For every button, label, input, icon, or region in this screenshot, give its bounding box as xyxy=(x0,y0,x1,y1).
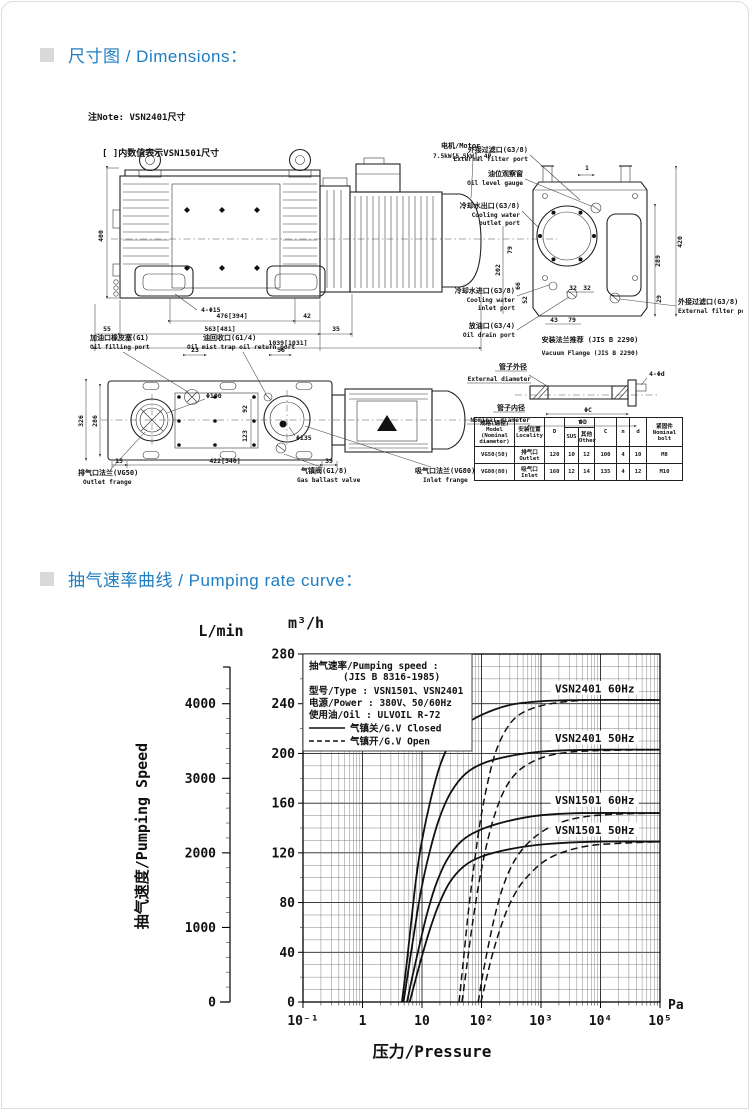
cooling-fins-left xyxy=(123,184,169,264)
cooling-out-zh: 冷却水出口(G3/8) xyxy=(460,201,520,210)
x-axis-ticks xyxy=(303,1002,660,1008)
x-tick-label: 10⁻¹ xyxy=(287,1014,318,1029)
datasheet-page: 尺寸图 / Dimensions： 注Note: VSN2401尺寸 [ ]内数… xyxy=(0,0,750,1109)
dim-42: 42 xyxy=(303,312,311,320)
table-cell: 120 xyxy=(545,447,565,464)
th-sus: SUS xyxy=(565,428,579,447)
lmin-tick-label: 2000 xyxy=(185,846,216,861)
ext-dia-en: External diameter xyxy=(468,375,532,383)
th-bolt: 紧固件 Nominal bolt xyxy=(647,418,683,447)
legend-dashed-label: 气镇开/G.V Open xyxy=(349,736,430,748)
pumping-rate-chart: 10⁻¹11010²10³10⁴10⁵Pa压力/Pressure04080120… xyxy=(90,608,750,1083)
dim-1: 1 xyxy=(585,164,589,172)
th-other: 其他 Other xyxy=(579,428,595,447)
cooling-in-zh: 冷却水进口(G3/8) xyxy=(455,286,515,295)
y-tick-label: 200 xyxy=(272,747,296,762)
dim-66: 66 xyxy=(514,282,522,290)
table-cell: 135 xyxy=(595,464,617,481)
dim-202: 202 xyxy=(494,264,502,276)
oil-fill-en: Oil filling port xyxy=(90,343,150,351)
table-cell: 4 xyxy=(617,464,630,481)
dim-52: 52 xyxy=(521,296,529,304)
cooling-in-en1: Cooling water xyxy=(467,296,516,304)
dim-32a: 32 xyxy=(569,284,577,292)
dim-d100: Φ100 xyxy=(206,392,222,400)
y-tick-label: 40 xyxy=(279,946,295,961)
gas-ballast-zh: 气镇阀(G1/8) xyxy=(300,466,347,475)
motor-fins xyxy=(355,196,433,288)
curve-vsn2401-50hz-g-v-open xyxy=(462,750,660,1002)
curve-section-header: 抽气速率曲线 / Pumping rate curve： xyxy=(40,566,363,591)
table-row: VG50(50)排气口 Outlet1201012100410M8 xyxy=(475,447,683,464)
oil-drain-zh: 放油口(G3/4) xyxy=(468,321,515,330)
curve-vsn1501-50hz-g-v-open xyxy=(481,842,660,1002)
th-d: D xyxy=(545,418,565,447)
nom-dia-zh: 管子内径 xyxy=(497,403,525,412)
x-tick-label: 10 xyxy=(414,1014,430,1029)
th-n: n xyxy=(617,418,630,447)
flange-title-en: Vacuum Flange (JIS B 2290) xyxy=(542,350,639,357)
legend-line-4: 电源/Power : 380V、50/60Hz xyxy=(309,697,452,709)
flange-table: 规格(通径) Model (Nominal diameter) 安装位置 Loc… xyxy=(474,417,683,481)
dim-35: 35 xyxy=(332,325,340,333)
table-cell: M10 xyxy=(647,464,683,481)
ext-filter-top-en: External filter port xyxy=(453,155,528,163)
dim-15: 15 xyxy=(115,457,123,465)
cooling-out-en1: Cooling water xyxy=(472,211,521,219)
dim-286: 286 xyxy=(91,415,99,427)
y-axis-lmin xyxy=(220,667,230,1002)
lmin-tick-label: 4000 xyxy=(185,697,216,712)
th-locality: 安装位置 Locality xyxy=(515,418,545,447)
oil-gauge-en: Oil level gauge xyxy=(467,179,523,187)
outlet-flange-en: Outlet frange xyxy=(83,479,132,486)
table-cell: VG50(50) xyxy=(475,447,515,464)
x-tick-label: 10⁴ xyxy=(589,1014,612,1029)
section-bullet-icon xyxy=(40,48,54,62)
inlet-flange-zh: 吸气口法兰(VG80) xyxy=(415,466,475,475)
oil-fill-zh: 加油口橡皮塞(G1) xyxy=(89,333,149,342)
y-axis-m3h xyxy=(298,654,303,1002)
y-unit-lmin: L/min xyxy=(198,622,243,640)
flange-bolt-label: 4-Φd xyxy=(649,370,665,378)
y-tick-label: 120 xyxy=(272,846,296,861)
x-tick-label: 10⁵ xyxy=(648,1014,671,1029)
dim-563: 563[481] xyxy=(204,325,235,333)
dim-79b: 79 xyxy=(568,316,576,324)
lmin-tick-label: 1000 xyxy=(185,921,216,936)
curve-vsn2401-60hz-g-v-open xyxy=(459,700,660,1002)
flange-title-zh: 安装法兰推荐 (JIS B 2290) xyxy=(542,335,639,344)
dim-326: 326 xyxy=(77,415,85,427)
x-tick-label: 10² xyxy=(470,1014,493,1029)
ext-dia-zh: 管子外径 xyxy=(499,362,527,371)
y-tick-label: 240 xyxy=(272,697,296,712)
end-view: 外接过滤口(G3/8) External filter port 油位观察窗 O… xyxy=(453,145,743,339)
dim-55: 55 xyxy=(103,325,111,333)
dim-29: 29 xyxy=(655,295,663,303)
ext-filter-bot-zh: 外接过滤口(G3/8) xyxy=(678,297,738,306)
y-tick-label: 80 xyxy=(279,896,295,911)
curve-label: VSN1501 60Hz xyxy=(555,794,634,807)
table-cell: 10 xyxy=(565,447,579,464)
flange-cross-section xyxy=(530,380,646,406)
legend-line-3: 型号/Type : VSN1501、VSN2401 xyxy=(309,685,464,697)
table-cell: 10 xyxy=(630,447,647,464)
dim-d135: Φ135 xyxy=(296,434,312,442)
curve-label: VSN1501 50Hz xyxy=(555,824,634,837)
oil-gauge-zh: 油位观察窗 xyxy=(488,169,523,178)
dim-422: 422[340] xyxy=(209,457,240,465)
oil-drain-en: Oil drain port xyxy=(463,331,515,339)
dim-476: 476[394] xyxy=(216,312,247,320)
x-axis-title: 压力/Pressure xyxy=(373,1042,492,1061)
legend-line-5: 使用油/Oil : ULVOIL R-72 xyxy=(308,709,440,721)
inlet-flange-en: Inlet frange xyxy=(423,477,468,484)
th-dd: d xyxy=(630,418,647,447)
y-unit-m3h: m³/h xyxy=(288,614,324,632)
dim-32b: 32 xyxy=(583,284,591,292)
y-tick-label: 280 xyxy=(272,648,296,663)
dim-92: 92 xyxy=(241,405,249,413)
ext-filter-bot-en: External filter port xyxy=(678,307,743,315)
table-cell: 14 xyxy=(579,464,595,481)
table-cell: 吸气口 Inlet xyxy=(515,464,545,481)
curve-label: VSN2401 50Hz xyxy=(555,732,634,745)
th-t: T xyxy=(565,418,595,428)
legend-solid-label: 气镇关/G.V Closed xyxy=(349,723,442,735)
x-unit-label: Pa xyxy=(668,998,684,1013)
x-tick-label: 10³ xyxy=(529,1014,552,1029)
flange-c-label: ΦC xyxy=(584,406,592,414)
dim-123: 123 xyxy=(241,430,249,442)
table-cell: 排气口 Outlet xyxy=(515,447,545,464)
table-cell: 100 xyxy=(595,447,617,464)
panel-bolts xyxy=(184,207,260,271)
curve-vsn1501-50hz-g-v-closed xyxy=(410,841,660,1002)
top-view: 加油口橡皮塞(G1) Oil filling port 油回收口(G1/4) O… xyxy=(77,333,475,486)
cooling-in-en2: inlet port xyxy=(478,304,516,312)
curve-title: 抽气速率曲线 / Pumping rate curve： xyxy=(68,566,363,591)
cooling-out-en2: outlet port xyxy=(479,220,520,227)
table-cell: 160 xyxy=(545,464,565,481)
dim-43: 43 xyxy=(550,316,558,324)
lmin-tick-label: 0 xyxy=(208,996,216,1011)
curve-label: VSN2401 60Hz xyxy=(555,682,634,695)
lmin-tick-label: 3000 xyxy=(185,772,216,787)
section-bullet-icon xyxy=(40,572,54,586)
dimensions-section-header: 尺寸图 / Dimensions： xyxy=(40,42,247,67)
outlet-flange-zh: 排气口法兰(VG50) xyxy=(78,468,138,477)
x-tick-label: 1 xyxy=(359,1014,367,1029)
th-c: C xyxy=(595,418,617,447)
y-tick-label: 0 xyxy=(287,996,295,1011)
ext-filter-top-zh: 外接过滤口(G3/8) xyxy=(468,145,528,154)
table-cell: 12 xyxy=(630,464,647,481)
y-tick-label: 160 xyxy=(272,797,296,812)
th-model: 规格(通径) Model (Nominal diameter) xyxy=(475,418,515,447)
flange-section: 安装法兰推荐 (JIS B 2290) Vacuum Flange (JIS B… xyxy=(467,335,665,426)
table-cell: 12 xyxy=(579,447,595,464)
table-row: VG80(80)吸气口 Inlet1601214135412M10 xyxy=(475,464,683,481)
legend-line-2: (JIS B 8316-1985) xyxy=(343,672,440,683)
table-cell: 12 xyxy=(565,464,579,481)
dim-56: 56 xyxy=(277,346,285,354)
table-cell: VG80(80) xyxy=(475,464,515,481)
dim-420: 420 xyxy=(676,236,684,248)
dim-23: 23 xyxy=(191,346,199,354)
table-cell: M8 xyxy=(647,447,683,464)
table-cell: 4 xyxy=(617,447,630,464)
flange-bolts xyxy=(538,211,596,262)
cooling-fins-right xyxy=(283,184,317,264)
dimensions-title: 尺寸图 / Dimensions： xyxy=(68,42,247,67)
dim-39: 39 xyxy=(325,457,333,465)
dim-400: 400 xyxy=(97,230,105,242)
gas-ballast-en: Gas ballast valve xyxy=(297,477,361,484)
legend-line-1: 抽气速率/Pumping speed : xyxy=(309,660,439,672)
mount-slots xyxy=(143,383,312,459)
y-axis-title: 抽气速度/Pumping Speed xyxy=(133,743,151,929)
oil-return-zh: 油回收口(G1/4) xyxy=(203,333,256,342)
dim-289: 289 xyxy=(654,255,662,267)
dim-79a: 79 xyxy=(506,246,514,254)
